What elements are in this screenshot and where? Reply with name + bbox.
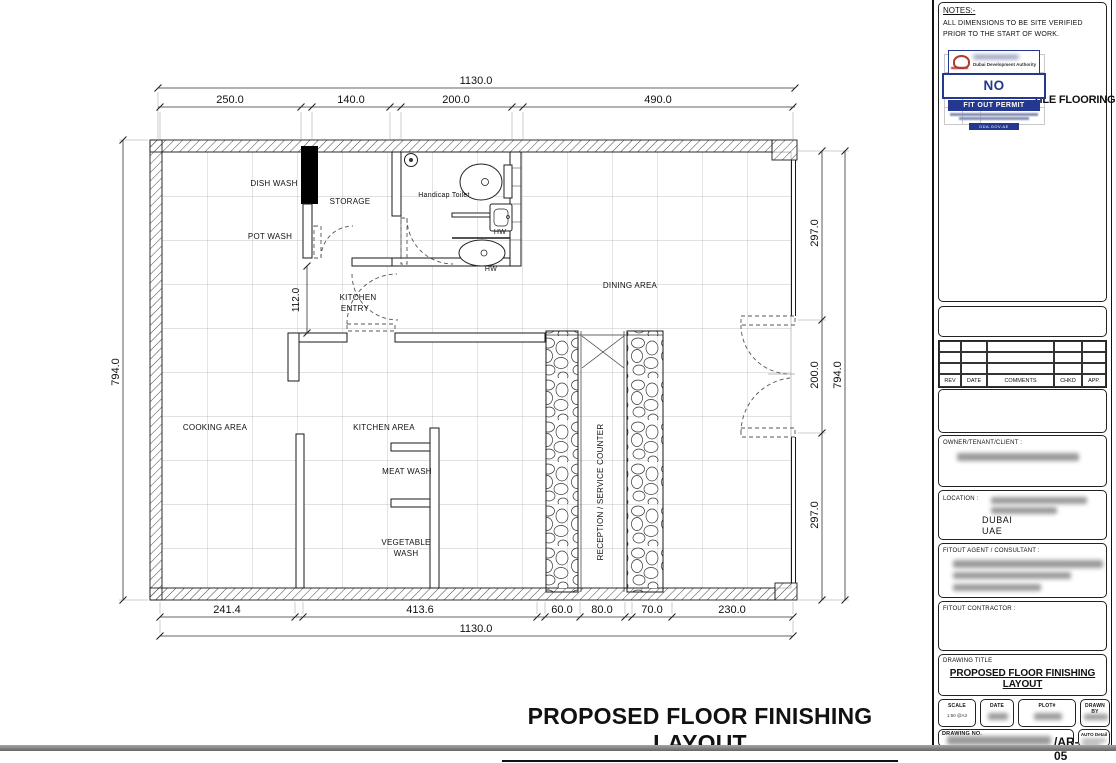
approval-stamp: Dubai Development Authority NO OBJECTION… [942, 47, 1048, 133]
location-country: UAE [982, 526, 1002, 536]
scale-box: SCALE 1:50 @A3 [938, 699, 976, 727]
dim-top-total: 1130.0 [460, 75, 493, 87]
dim-right-3: 297.0 [809, 501, 821, 529]
stamp-disclaimer-redacted [950, 113, 1038, 116]
rev-cell [1082, 352, 1106, 363]
label-cooking-area: COOKING AREA [183, 423, 248, 432]
dim-right-1: 297.0 [809, 219, 821, 247]
drawn-by-box: DRAWN BY [1080, 699, 1110, 727]
date-label: DATE [981, 703, 1013, 709]
rev-header-chkd: CHKD [1054, 374, 1082, 387]
owner-box: OWNER/TENANT/CLIENT : [938, 435, 1107, 487]
sheet-bottom-edge [0, 745, 1116, 751]
scale-label: SCALE [939, 703, 975, 709]
drawing-title-label: DRAWING TITLE [943, 658, 992, 664]
redacted-agent-line [953, 584, 1041, 591]
dim-bottom-6: 230.0 [718, 604, 746, 616]
dim-bottom-4: 80.0 [591, 604, 612, 616]
meat-wash-counter [391, 443, 430, 451]
stamp-header: Dubai Development Authority [948, 50, 1040, 74]
stamp-disclaimer-redacted [959, 117, 1029, 120]
label-dish-wash: DISH WASH [250, 179, 297, 188]
rev-header-comments: COMMENTS [987, 374, 1054, 387]
wc-cistern [504, 165, 512, 198]
plot-box: PLOT# [1018, 699, 1076, 727]
label-vegetable-wash-2: WASH [394, 549, 419, 558]
title-block-panel: NOTES:- ALL DIMENSIONS TO BE SITE VERIFI… [932, 0, 1112, 751]
structural-column [301, 146, 318, 204]
notes-label: NOTES:- [943, 6, 1106, 15]
redacted-drawing-no [947, 736, 1051, 745]
right-wall [792, 160, 796, 583]
label-hw-upper: HW [494, 229, 506, 236]
dim-top-3: 200.0 [442, 94, 470, 106]
stamp-no-objection: NO OBJECTION [942, 73, 1046, 99]
dim-top-2: 140.0 [337, 94, 365, 106]
label-reception-counter: RECEPTION / SERVICE COUNTER [596, 424, 605, 561]
rev-cell [961, 363, 987, 374]
fitout-contractor-label: FITOUT CONTRACTOR : [943, 606, 1106, 612]
revision-table: REV DATE COMMENTS CHKD APP. [938, 340, 1107, 388]
stamp-fit-out-permit: FIT OUT PERMIT [948, 100, 1040, 111]
wash-basin [459, 240, 505, 266]
dim-entry-width: 112.0 [291, 287, 302, 312]
dim-bottom-2: 413.6 [406, 604, 434, 616]
rev-cell [987, 352, 1054, 363]
plot-label: PLOT# [1019, 703, 1075, 709]
fitout-agent-label: FITOUT AGENT / CONSULTANT : [943, 548, 1106, 554]
owner-label: OWNER/TENANT/CLIENT : [943, 440, 1106, 446]
rev-header-rev: REV [939, 374, 961, 387]
redacted-location-line [991, 507, 1057, 514]
rev-header-date: DATE [961, 374, 987, 387]
rev-cell [939, 341, 961, 352]
rev-cell [987, 363, 1054, 374]
label-kitchen-area: KITCHEN AREA [353, 423, 415, 432]
label-pot-wash: POT WASH [248, 232, 292, 241]
label-dining-area: DINING AREA [603, 281, 658, 290]
empty-box [938, 306, 1107, 337]
drawing-title-box: DRAWING TITLE PROPOSED FLOOR FINISHING L… [938, 654, 1107, 696]
rev-cell [1054, 341, 1082, 352]
redacted-date [988, 713, 1008, 720]
label-kitchen-entry-2: ENTRY [341, 304, 370, 313]
rev-cell [1082, 341, 1106, 352]
rev-cell [1082, 363, 1106, 374]
rev-cell [987, 341, 1054, 352]
rev-cell [939, 352, 961, 363]
hand-wash-sink [490, 204, 512, 231]
dim-left-total: 794.0 [110, 358, 122, 386]
scale-value: 1:50 @A3 [939, 713, 975, 718]
redacted-agent-line [953, 560, 1103, 568]
fitout-contractor-box: FITOUT CONTRACTOR : [938, 601, 1107, 651]
stamp-authority-name: Dubai Development Authority [973, 62, 1036, 67]
location-box: LOCATION : DUBAI UAE [938, 490, 1107, 540]
dim-bottom-total: 1130.0 [460, 623, 493, 635]
redacted-agent-line [953, 572, 1071, 579]
vegetable-wash-counter [391, 499, 430, 507]
auto-detail-label: AUTO Detail [1079, 732, 1109, 737]
dim-top-4: 490.0 [644, 94, 672, 106]
dim-bottom-1: 241.4 [213, 604, 241, 616]
rev-cell [1054, 363, 1082, 374]
notes-box: NOTES:- ALL DIMENSIONS TO BE SITE VERIFI… [938, 2, 1107, 302]
redacted-owner-name [957, 453, 1079, 461]
dim-top-1: 250.0 [216, 94, 244, 106]
rev-cell [961, 352, 987, 363]
label-storage: STORAGE [330, 197, 371, 206]
dim-right-2: 200.0 [809, 361, 821, 389]
dim-bottom-5: 70.0 [641, 604, 662, 616]
rev-cell [961, 341, 987, 352]
redacted-plot [1034, 713, 1062, 720]
redacted-location-line [991, 497, 1087, 504]
stamp-website: DDA.GOV.AE [969, 123, 1019, 130]
label-kitchen-entry-1: KITCHEN [340, 293, 377, 302]
date-box: DATE [980, 699, 1014, 727]
dim-right-total: 794.0 [832, 361, 844, 389]
notes-text: ALL DIMENSIONS TO BE SITE VERIFIED PRIOR… [943, 19, 1100, 40]
fitout-agent-box: FITOUT AGENT / CONSULTANT : [938, 543, 1107, 598]
label-handicap-toilet: Handicap Toilet [418, 192, 470, 199]
redacted-drawn-by [1084, 714, 1108, 720]
label-vegetable-wash-1: VEGETABLE [381, 538, 430, 547]
rev-header-app: APP. [1082, 374, 1106, 387]
floor-plan-drawing: 1130.0 250.0 140.0 200.0 490.0 241.4 413… [0, 0, 932, 751]
rev-cell [939, 363, 961, 374]
label-meat-wash: MEAT WASH [382, 467, 432, 476]
rev-cell [1054, 352, 1082, 363]
empty-box [938, 389, 1107, 433]
sheet-main-title: PROPOSED FLOOR FINISHING LAYOUT [502, 703, 898, 762]
location-city: DUBAI [982, 515, 1013, 525]
dim-bottom-3: 60.0 [551, 604, 572, 616]
label-hw-lower: HW [485, 266, 497, 273]
drawing-title-text: PROPOSED FLOOR FINISHING LAYOUT [939, 668, 1106, 690]
authority-logo-text [951, 67, 968, 69]
redacted-auto-detail [1082, 739, 1106, 742]
